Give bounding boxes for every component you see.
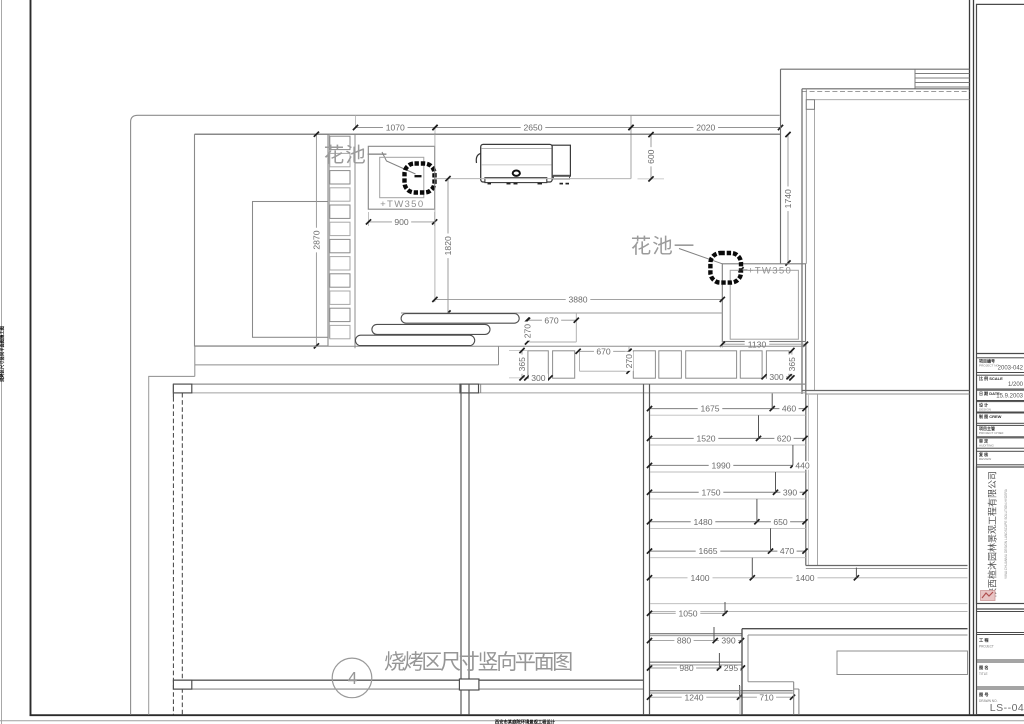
svg-text:390: 390 (721, 636, 736, 646)
svg-text:比 例 SCALE: 比 例 SCALE (979, 375, 1003, 381)
svg-text:PROJECT CHIEF: PROJECT CHIEF (979, 431, 1004, 435)
svg-text:880: 880 (677, 636, 692, 646)
svg-text:2020: 2020 (696, 123, 715, 133)
svg-text:1480: 1480 (693, 517, 712, 527)
svg-text:1/200: 1/200 (1008, 382, 1024, 388)
svg-text:620: 620 (777, 434, 792, 444)
svg-text:670: 670 (544, 315, 559, 325)
svg-text:工 程: 工 程 (979, 637, 989, 644)
svg-text:1740: 1740 (783, 189, 793, 208)
svg-text:300: 300 (769, 372, 784, 382)
svg-text:LS--04: LS--04 (990, 702, 1024, 714)
svg-text:图 号: 图 号 (979, 691, 989, 698)
svg-text:陕西楦沐园林景观工程有限公司: 陕西楦沐园林景观工程有限公司 (987, 471, 998, 597)
svg-text:2650: 2650 (523, 123, 542, 133)
svg-text:710: 710 (759, 692, 774, 702)
svg-text:西安市某庭院环境景观工程设计: 西安市某庭院环境景观工程设计 (495, 718, 556, 724)
svg-text:670: 670 (596, 346, 611, 356)
svg-text:AUDITING: AUDITING (979, 444, 994, 448)
svg-text:15.9.2003: 15.9.2003 (996, 394, 1023, 400)
svg-text:1675: 1675 (700, 404, 719, 414)
svg-text:PROJECT: PROJECT (979, 645, 994, 649)
svg-text:2870: 2870 (312, 230, 322, 249)
svg-text:650: 650 (773, 517, 788, 527)
svg-text:600: 600 (646, 149, 656, 164)
svg-text:270: 270 (523, 324, 533, 339)
svg-text:花池一: 花池一 (324, 144, 389, 167)
svg-text:1240: 1240 (684, 692, 703, 702)
svg-text:365: 365 (517, 357, 527, 372)
svg-text:3880: 3880 (568, 295, 587, 305)
svg-text:1665: 1665 (698, 546, 717, 556)
svg-text:花池一: 花池一 (631, 235, 696, 258)
svg-text:YIWA CHUANMU DESIGN LANDSCAPE: YIWA CHUANMU DESIGN LANDSCAPE SOLUTION-H… (1004, 488, 1008, 579)
svg-text:DESIGN: DESIGN (979, 407, 991, 411)
svg-text:4: 4 (348, 668, 358, 688)
svg-text:1520: 1520 (696, 434, 715, 444)
svg-text:+TW350: +TW350 (380, 199, 424, 210)
svg-text:1130: 1130 (748, 339, 767, 349)
svg-text:365: 365 (787, 357, 797, 372)
svg-text:470: 470 (780, 546, 795, 556)
svg-text:300: 300 (531, 373, 546, 383)
svg-text:PROJECT NO: PROJECT NO (979, 364, 999, 368)
svg-text:390: 390 (783, 487, 798, 497)
svg-text:1990: 1990 (711, 461, 730, 471)
svg-text:1070: 1070 (386, 123, 405, 133)
svg-text:图 名: 图 名 (979, 664, 989, 671)
svg-text:REVIEW: REVIEW (979, 457, 991, 461)
svg-text:制 图 CREW: 制 图 CREW (979, 413, 1002, 419)
svg-text:+TW350: +TW350 (748, 265, 792, 276)
svg-text:460: 460 (782, 404, 797, 414)
svg-text:1400: 1400 (690, 573, 709, 583)
svg-text:1050: 1050 (678, 608, 697, 618)
svg-text:2003-042: 2003-042 (998, 366, 1024, 372)
svg-text:1820: 1820 (443, 236, 453, 255)
svg-text:TITLE: TITLE (979, 672, 988, 676)
svg-text:270: 270 (624, 354, 634, 369)
svg-text:1750: 1750 (701, 487, 720, 497)
svg-text:烧烤区尺寸竖向平面图: 烧烤区尺寸竖向平面图 (384, 651, 572, 674)
svg-text:900: 900 (394, 217, 409, 227)
svg-text:1400: 1400 (795, 573, 814, 583)
svg-text:440: 440 (795, 461, 810, 471)
